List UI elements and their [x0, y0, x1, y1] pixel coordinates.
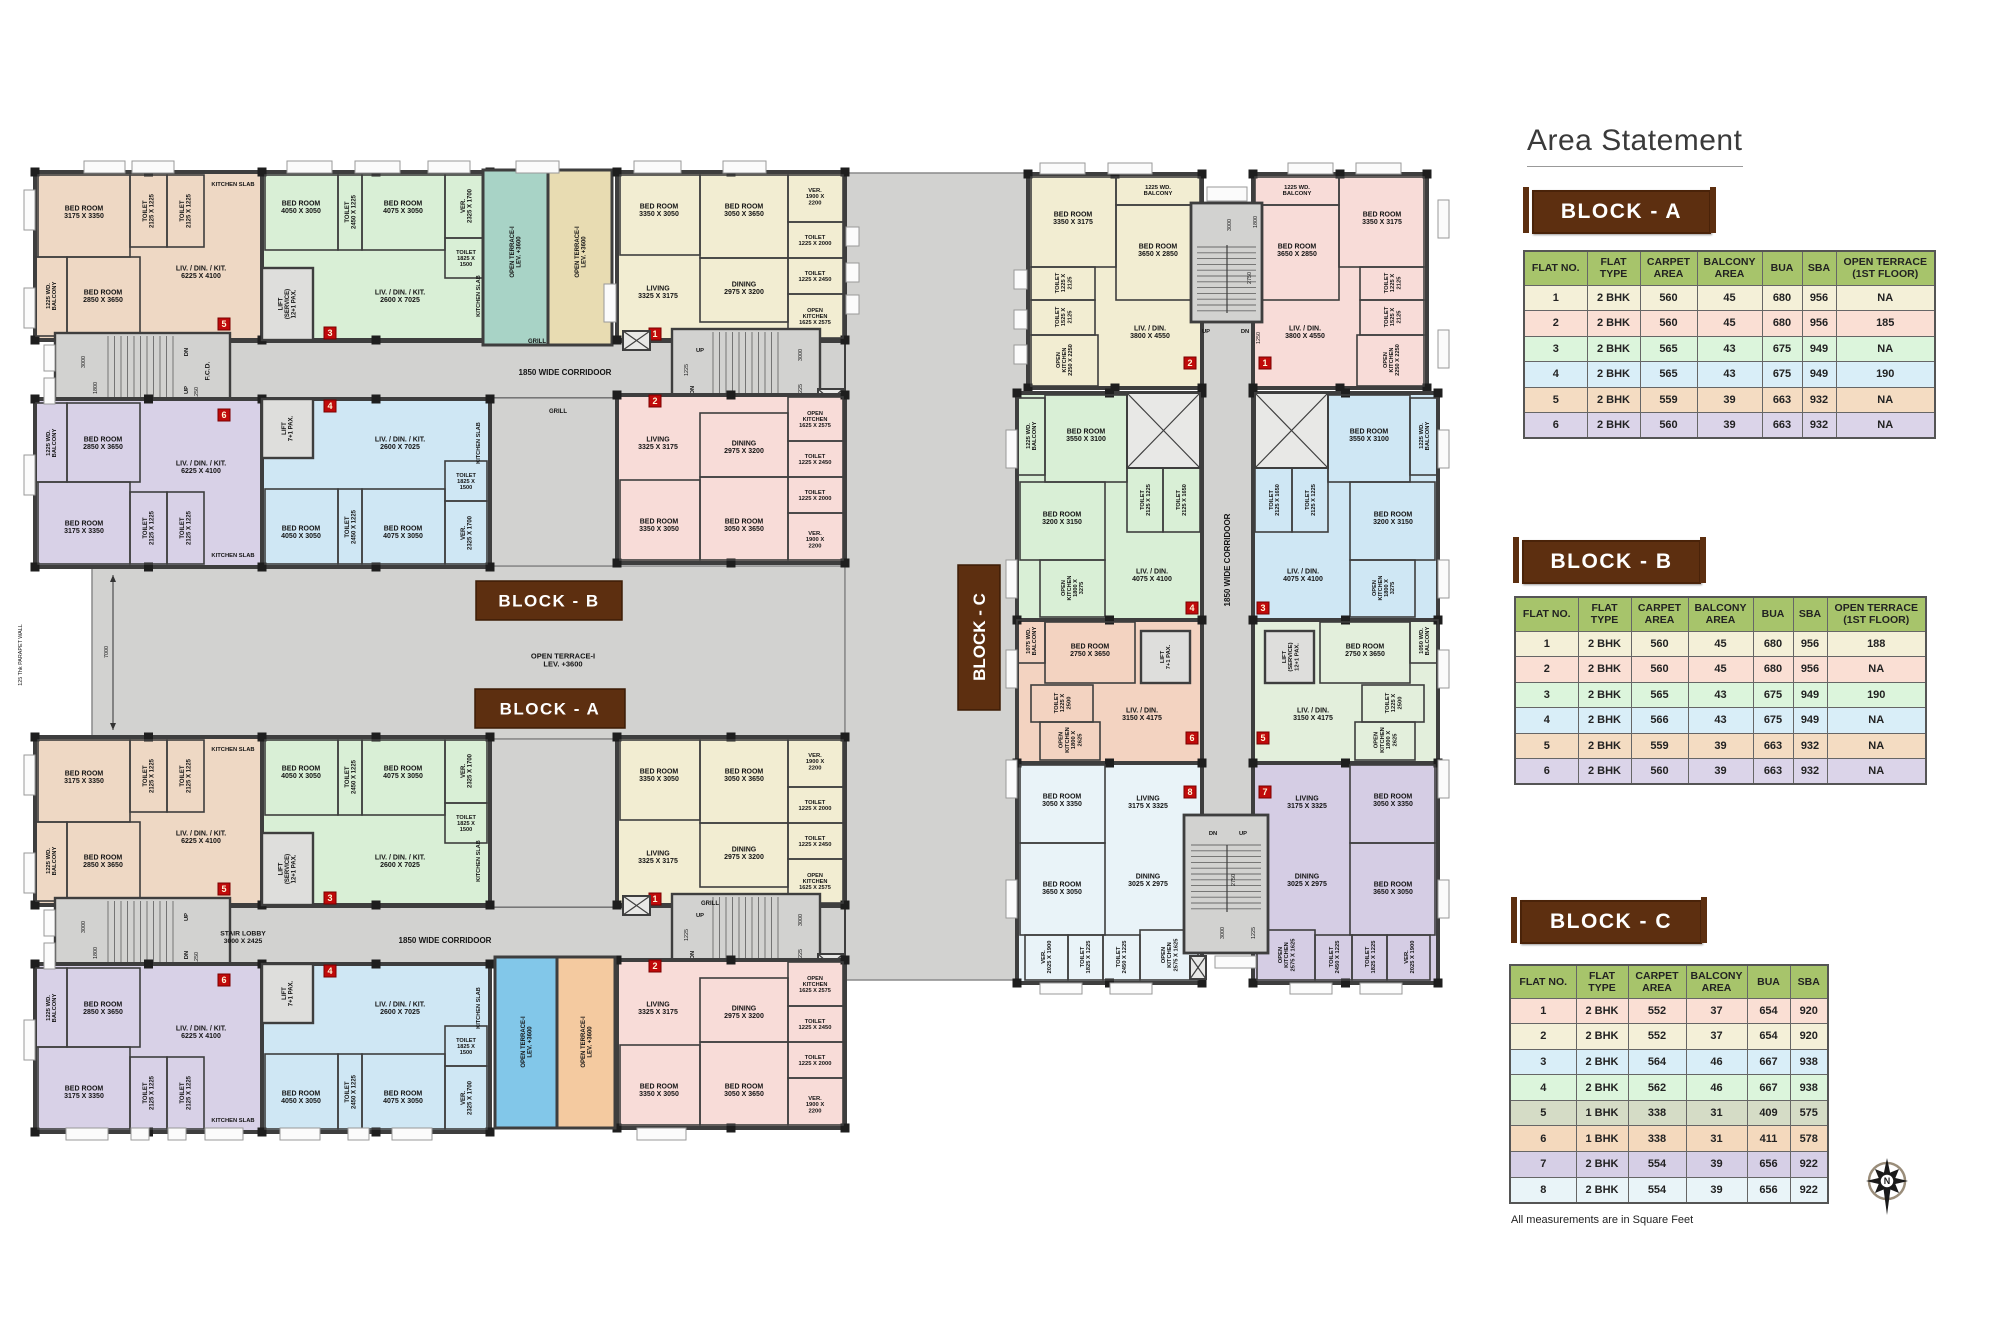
svg-text:2750: 2750 [1247, 272, 1253, 284]
svg-text:BED ROOM3550 X 3100: BED ROOM3550 X 3100 [1349, 429, 1389, 444]
svg-text:KITCHEN SLAB: KITCHEN SLAB [476, 987, 482, 1029]
svg-text:LIV. / DIN. / KIT.2600 X 7025: LIV. / DIN. / KIT.2600 X 7025 [375, 437, 425, 452]
svg-text:BED ROOM2850 X 3650: BED ROOM2850 X 3650 [83, 290, 123, 305]
svg-text:3000: 3000 [798, 349, 804, 361]
svg-text:1225 WD.BALCONY: 1225 WD.BALCONY [46, 994, 58, 1023]
svg-text:1225: 1225 [684, 364, 690, 376]
svg-text:1225 WD.BALCONY: 1225 WD.BALCONY [1419, 422, 1431, 451]
svg-text:3000: 3000 [81, 356, 87, 368]
svg-text:UP: UP [696, 913, 704, 919]
svg-text:1800: 1800 [93, 382, 99, 394]
svg-text:LIV. / DIN.3150 X 4175: LIV. / DIN.3150 X 4175 [1293, 708, 1333, 723]
svg-text:1800: 1800 [93, 947, 99, 959]
svg-text:3000: 3000 [1227, 219, 1233, 231]
svg-text:BED ROOM3050 X 3650: BED ROOM3050 X 3650 [724, 1084, 764, 1099]
svg-text:BED ROOM4050 X 3050: BED ROOM4050 X 3050 [281, 201, 321, 216]
svg-text:BED ROOM3200 X 3150: BED ROOM3200 X 3150 [1373, 512, 1413, 527]
svg-text:1850 WIDE CORRIDOOR: 1850 WIDE CORRIDOOR [399, 936, 492, 945]
svg-text:GRILL: GRILL [701, 901, 719, 907]
svg-text:BED ROOM3175 X 3350: BED ROOM3175 X 3350 [64, 771, 104, 786]
svg-text:5: 5 [1260, 733, 1265, 743]
svg-text:3: 3 [1260, 603, 1265, 613]
svg-text:KITCHEN SLAB: KITCHEN SLAB [476, 422, 482, 464]
svg-text:DN: DN [690, 951, 696, 959]
svg-text:1225 WD.BALCONY: 1225 WD.BALCONY [46, 282, 58, 311]
svg-text:UP: UP [696, 348, 704, 354]
svg-text:7000: 7000 [104, 646, 110, 658]
svg-text:BED ROOM2750 X 3650: BED ROOM2750 X 3650 [1070, 644, 1110, 659]
svg-text:KITCHEN SLAB: KITCHEN SLAB [476, 840, 482, 882]
svg-text:1800: 1800 [1253, 216, 1259, 228]
svg-text:GRILL: GRILL [549, 409, 567, 415]
svg-text:1225: 1225 [1251, 927, 1257, 939]
svg-text:8: 8 [1187, 787, 1192, 797]
svg-text:3000: 3000 [798, 914, 804, 926]
svg-text:BED ROOM4050 X 3050: BED ROOM4050 X 3050 [281, 766, 321, 781]
svg-text:LIV. / DIN.4075 X 4100: LIV. / DIN.4075 X 4100 [1283, 569, 1323, 584]
svg-text:1850 WIDE CORRIDOOR: 1850 WIDE CORRIDOOR [1223, 513, 1232, 606]
svg-text:BLOCK - B: BLOCK - B [498, 592, 599, 611]
svg-text:KITCHEN SLAB: KITCHEN SLAB [211, 747, 254, 753]
svg-text:BED ROOM3050 X 3350: BED ROOM3050 X 3350 [1042, 794, 1082, 809]
svg-text:LIV. / DIN. / KIT.6225 X 4100: LIV. / DIN. / KIT.6225 X 4100 [176, 266, 226, 281]
svg-text:BED ROOM2850 X 3650: BED ROOM2850 X 3650 [83, 1002, 123, 1017]
svg-text:1075 WD.BALCONY: 1075 WD.BALCONY [1026, 627, 1038, 656]
svg-text:BED ROOM3650 X 2850: BED ROOM3650 X 2850 [1138, 244, 1178, 259]
svg-text:5: 5 [221, 319, 226, 329]
svg-text:3000: 3000 [81, 921, 87, 933]
svg-text:1250: 1250 [1256, 332, 1262, 344]
svg-text:BED ROOM3550 X 3100: BED ROOM3550 X 3100 [1066, 429, 1106, 444]
svg-text:125 Thk PARAPET WALL: 125 Thk PARAPET WALL [18, 624, 24, 686]
svg-text:1225 WD.BALCONY: 1225 WD.BALCONY [1026, 422, 1038, 451]
svg-text:1225 WD.BALCONY: 1225 WD.BALCONY [46, 429, 58, 458]
svg-text:BED ROOM3350 X 3050: BED ROOM3350 X 3050 [639, 519, 679, 534]
svg-text:1: 1 [1262, 358, 1267, 368]
svg-text:LIV. / DIN.3800 X 4550: LIV. / DIN.3800 X 4550 [1285, 326, 1325, 341]
svg-text:KITCHEN SLAB: KITCHEN SLAB [476, 275, 482, 317]
svg-text:1050 WD.BALCONY: 1050 WD.BALCONY [1419, 627, 1431, 656]
svg-text:KITCHEN SLAB: KITCHEN SLAB [211, 1118, 254, 1124]
svg-text:BED ROOM3350 X 3175: BED ROOM3350 X 3175 [1362, 212, 1402, 227]
svg-text:BLOCK - A: BLOCK - A [500, 700, 601, 719]
svg-text:KITCHEN SLAB: KITCHEN SLAB [211, 553, 254, 559]
svg-text:BED ROOM4075 X 3050: BED ROOM4075 X 3050 [383, 766, 423, 781]
svg-text:BED ROOM4050 X 3050: BED ROOM4050 X 3050 [281, 1091, 321, 1106]
svg-text:LIV. / DIN.4075 X 4100: LIV. / DIN.4075 X 4100 [1132, 569, 1172, 584]
svg-text:BED ROOM2850 X 3650: BED ROOM2850 X 3650 [83, 855, 123, 870]
svg-text:BLOCK - C: BLOCK - C [970, 593, 989, 681]
svg-text:GRILL: GRILL [528, 339, 546, 345]
svg-text:N: N [1884, 1176, 1891, 1186]
svg-text:DN: DN [184, 348, 190, 356]
svg-text:LIV. / DIN.3800 X 4550: LIV. / DIN.3800 X 4550 [1130, 326, 1170, 341]
svg-text:LIV. / DIN.3150 X 4175: LIV. / DIN.3150 X 4175 [1122, 708, 1162, 723]
svg-text:3: 3 [327, 893, 332, 903]
svg-text:UP: UP [1202, 329, 1210, 335]
svg-text:4: 4 [1189, 603, 1194, 613]
svg-text:BED ROOM4075 X 3050: BED ROOM4075 X 3050 [383, 526, 423, 541]
svg-text:F.C.D.: F.C.D. [204, 361, 211, 380]
svg-text:BED ROOM3175 X 3350: BED ROOM3175 X 3350 [64, 206, 104, 221]
svg-text:BED ROOM3650 X 3050: BED ROOM3650 X 3050 [1373, 882, 1413, 897]
svg-text:BED ROOM3175 X 3350: BED ROOM3175 X 3350 [64, 521, 104, 536]
svg-text:4: 4 [327, 401, 332, 411]
svg-text:UP: UP [184, 386, 190, 394]
svg-text:LIV. / DIN. / KIT.6225 X 4100: LIV. / DIN. / KIT.6225 X 4100 [176, 461, 226, 476]
svg-text:1225 WD.BALCONY: 1225 WD.BALCONY [1144, 185, 1173, 197]
svg-text:LIV. / DIN. / KIT.2600 X 7025: LIV. / DIN. / KIT.2600 X 7025 [375, 855, 425, 870]
svg-text:DN: DN [184, 951, 190, 959]
svg-text:BED ROOM4050 X 3050: BED ROOM4050 X 3050 [281, 526, 321, 541]
svg-text:BED ROOM3050 X 3650: BED ROOM3050 X 3650 [724, 769, 764, 784]
svg-text:BED ROOM3050 X 3350: BED ROOM3050 X 3350 [1373, 794, 1413, 809]
svg-text:BED ROOM3350 X 3050: BED ROOM3350 X 3050 [639, 1084, 679, 1099]
svg-text:DN: DN [1241, 329, 1249, 335]
svg-text:1225: 1225 [684, 929, 690, 941]
svg-text:UP: UP [1239, 831, 1247, 837]
svg-text:2750: 2750 [1231, 874, 1237, 886]
svg-text:LIV. / DIN. / KIT.2600 X 7025: LIV. / DIN. / KIT.2600 X 7025 [375, 1002, 425, 1017]
svg-text:3: 3 [327, 328, 332, 338]
svg-text:1225 WD.BALCONY: 1225 WD.BALCONY [46, 847, 58, 876]
svg-text:BED ROOM4075 X 3050: BED ROOM4075 X 3050 [383, 1091, 423, 1106]
svg-text:BED ROOM3175 X 3350: BED ROOM3175 X 3350 [64, 1086, 104, 1101]
svg-text:BED ROOM2850 X 3650: BED ROOM2850 X 3650 [83, 437, 123, 452]
svg-text:BED ROOM2750 X 3650: BED ROOM2750 X 3650 [1345, 644, 1385, 659]
svg-text:5: 5 [221, 884, 226, 894]
svg-text:BED ROOM3350 X 3050: BED ROOM3350 X 3050 [639, 204, 679, 219]
svg-text:DN: DN [690, 386, 696, 394]
svg-text:2: 2 [1187, 358, 1192, 368]
svg-text:6: 6 [1189, 733, 1194, 743]
svg-text:STAIR LOBBY3000 X 2425: STAIR LOBBY3000 X 2425 [220, 931, 266, 945]
svg-text:BED ROOM3350 X 3050: BED ROOM3350 X 3050 [639, 769, 679, 784]
svg-text:BED ROOM3350 X 3175: BED ROOM3350 X 3175 [1053, 212, 1093, 227]
svg-text:1: 1 [652, 894, 657, 904]
svg-text:KITCHEN SLAB: KITCHEN SLAB [211, 182, 254, 188]
svg-text:2: 2 [652, 396, 657, 406]
svg-text:6: 6 [221, 975, 226, 985]
svg-text:1: 1 [652, 329, 657, 339]
svg-text:BED ROOM3050 X 3650: BED ROOM3050 X 3650 [724, 519, 764, 534]
svg-text:BED ROOM3200 X 3150: BED ROOM3200 X 3150 [1042, 512, 1082, 527]
svg-text:BED ROOM4075 X 3050: BED ROOM4075 X 3050 [383, 201, 423, 216]
svg-text:LIV. / DIN. / KIT.2600 X 7025: LIV. / DIN. / KIT.2600 X 7025 [375, 290, 425, 305]
svg-text:LIV. / DIN. / KIT.6225 X 4100: LIV. / DIN. / KIT.6225 X 4100 [176, 831, 226, 846]
svg-text:LIV. / DIN. / KIT.6225 X 4100: LIV. / DIN. / KIT.6225 X 4100 [176, 1026, 226, 1041]
svg-text:BED ROOM3050 X 3650: BED ROOM3050 X 3650 [724, 204, 764, 219]
svg-text:1225 WD.BALCONY: 1225 WD.BALCONY [1283, 185, 1312, 197]
svg-text:UP: UP [184, 913, 190, 921]
svg-text:2: 2 [652, 961, 657, 971]
svg-text:7: 7 [1262, 787, 1267, 797]
svg-text:3000: 3000 [1220, 927, 1226, 939]
svg-text:4: 4 [327, 966, 332, 976]
svg-text:6: 6 [221, 410, 226, 420]
svg-text:BED ROOM3650 X 2850: BED ROOM3650 X 2850 [1277, 244, 1317, 259]
svg-text:DN: DN [1209, 831, 1217, 837]
svg-text:1850 WIDE CORRIDOOR: 1850 WIDE CORRIDOOR [519, 368, 612, 377]
svg-text:BED ROOM3650 X 3050: BED ROOM3650 X 3050 [1042, 882, 1082, 897]
